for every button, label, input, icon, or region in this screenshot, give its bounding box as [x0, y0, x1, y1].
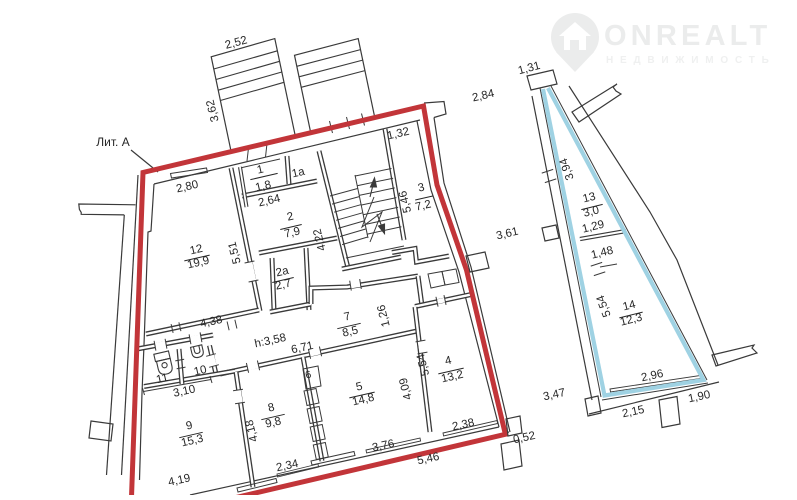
svg-text:ONREALT: ONREALT	[604, 20, 771, 52]
svg-text:НЕДВИЖИМОСТЬ: НЕДВИЖИМОСТЬ	[606, 55, 776, 66]
svg-text:Лит. А: Лит. А	[96, 135, 129, 149]
